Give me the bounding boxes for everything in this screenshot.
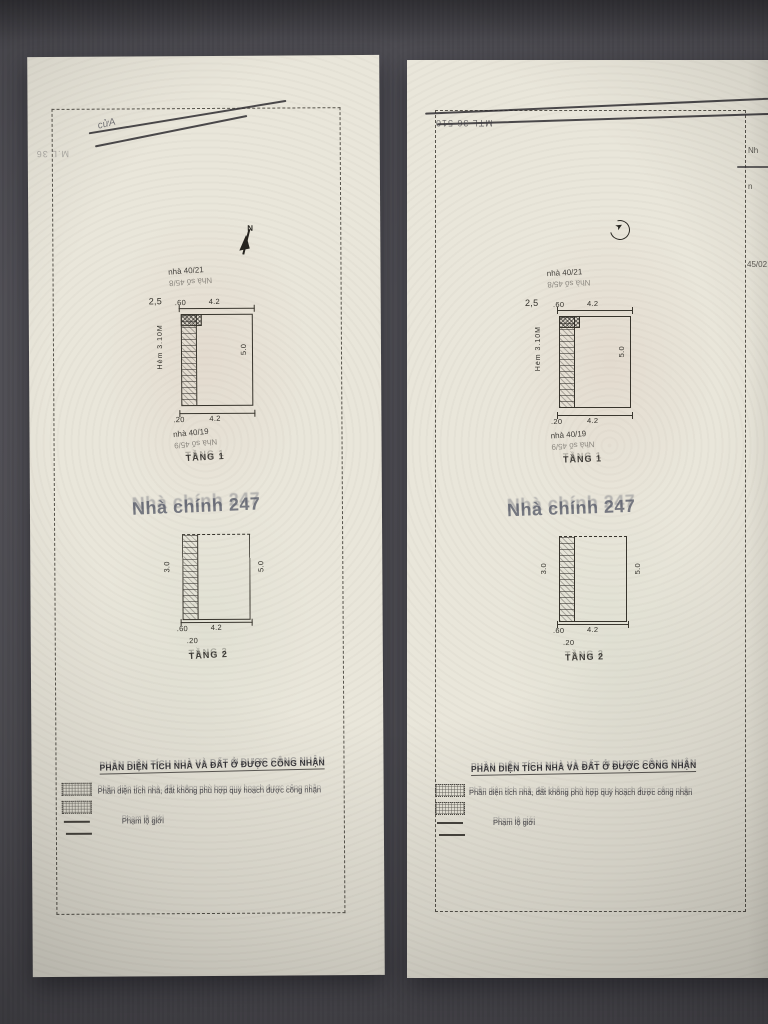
dimension-offset: 2,5: [149, 296, 162, 306]
legend-line3: Phạm lộ giới: [493, 818, 535, 827]
staircase-hatch: [183, 535, 199, 619]
legend-swatch-hatched: [435, 784, 465, 797]
edge-text-fragment: Nh: [748, 146, 758, 155]
floor2-plan-outline: [182, 534, 251, 620]
floor1-plan-outline: [181, 314, 254, 406]
dimension-bottom-a-f2: .60: [177, 624, 188, 633]
neighbor-label-top: nhà 40/21 Nhà số 45/8: [547, 267, 591, 289]
photo-background: cửA M.L 36 N nhà 40/21 Nhà số 45/8 2,5 .…: [0, 0, 768, 1024]
legend-swatch-hatched: [435, 802, 465, 815]
floor2-plan-outline: [559, 536, 627, 622]
dimension-bottom-c-f2: .20: [187, 636, 198, 645]
dimension-offset: 2,5: [525, 298, 538, 308]
dimension-bottom-a: .20: [173, 415, 184, 424]
floor1-label: TẦNG 1: [563, 453, 602, 464]
dimension-right-f2: 5.0: [633, 563, 642, 574]
staircase-hatch: [560, 537, 575, 621]
neighbor-top-line1: nhà 40/21: [547, 267, 583, 278]
legend-rule: [66, 833, 92, 835]
dimension-bottom-c-f2: .20: [563, 638, 574, 647]
legend-line2: Phần diện tích nhà, đất không phù hợp qu…: [98, 785, 321, 795]
legend-line2: Phần diện tích nhà, đất không phù hợp qu…: [469, 788, 692, 797]
legend-line3: Phạm lộ giới: [122, 816, 164, 825]
dimension-right-f2: 5.0: [256, 561, 265, 572]
alley-label: Hẻm 3.10M: [157, 324, 164, 369]
neighbor-label-bottom: nhà 40/19 Nhà số 45/9: [550, 429, 594, 452]
edge-line-fragment: [737, 166, 768, 168]
landing-hatch: [181, 314, 202, 326]
neighbor-label-top: nhà 40/21 Nhà số 45/8: [168, 264, 213, 287]
serial-number-fragment: M.L 36: [36, 149, 69, 159]
staircase-hatch: [560, 317, 575, 407]
dimension-bottom-a-f2: .60: [553, 626, 564, 635]
north-label: N: [247, 224, 253, 233]
dimension-left-f2: 3.0: [162, 561, 171, 572]
dimension-left-f2: 3.0: [539, 563, 548, 574]
dimension-top-b: 4.2: [587, 299, 598, 308]
dimension-bottom-b: 4.2: [587, 416, 598, 425]
document-page-right: MTL 36 510 nhà 40/21 Nhà số 45/8 2,5 .60…: [407, 60, 768, 978]
floor2-label: TẦNG 2: [565, 651, 604, 662]
dimension-right: 5.0: [617, 346, 626, 357]
watermark-text: Nhà chính 247: [507, 496, 636, 521]
legend-swatch-hatched: [62, 801, 92, 814]
dimension-bottom-b: 4.2: [209, 414, 220, 423]
serial-number: MTL 36 510: [435, 118, 493, 128]
dimension-line-top: [557, 310, 633, 311]
alley-label: Hẻm 3.10M: [535, 326, 542, 371]
neighbor-label-bottom: nhà 40/19 Nhà số 45/9: [173, 426, 218, 450]
legend-swatch-hatched: [62, 783, 92, 796]
dimension-top-b: 4.2: [209, 297, 220, 306]
dimension-bottom-b-f2: 4.2: [587, 625, 598, 634]
legend-rule: [437, 822, 463, 824]
landing-hatch: [559, 316, 580, 328]
edge-text-fragment: 45/02: [747, 260, 767, 269]
dimension-top-a: .60: [553, 300, 564, 309]
legend-rule: [439, 834, 465, 836]
north-arrow-icon: N: [231, 229, 257, 259]
north-arrow-head: [239, 234, 251, 251]
document-page-left: cửA M.L 36 N nhà 40/21 Nhà số 45/8 2,5 .…: [27, 55, 385, 977]
staircase-hatch: [182, 315, 198, 405]
floor1-plan-outline: [559, 316, 631, 408]
dimension-bottom-b-f2: 4.2: [211, 623, 222, 632]
dimension-right: 5.0: [239, 344, 248, 355]
dimension-bottom-a: .20: [551, 417, 562, 426]
legend-rule: [64, 821, 90, 823]
dimension-top-a: .60: [175, 298, 186, 307]
edge-text-fragment: n: [748, 182, 752, 191]
